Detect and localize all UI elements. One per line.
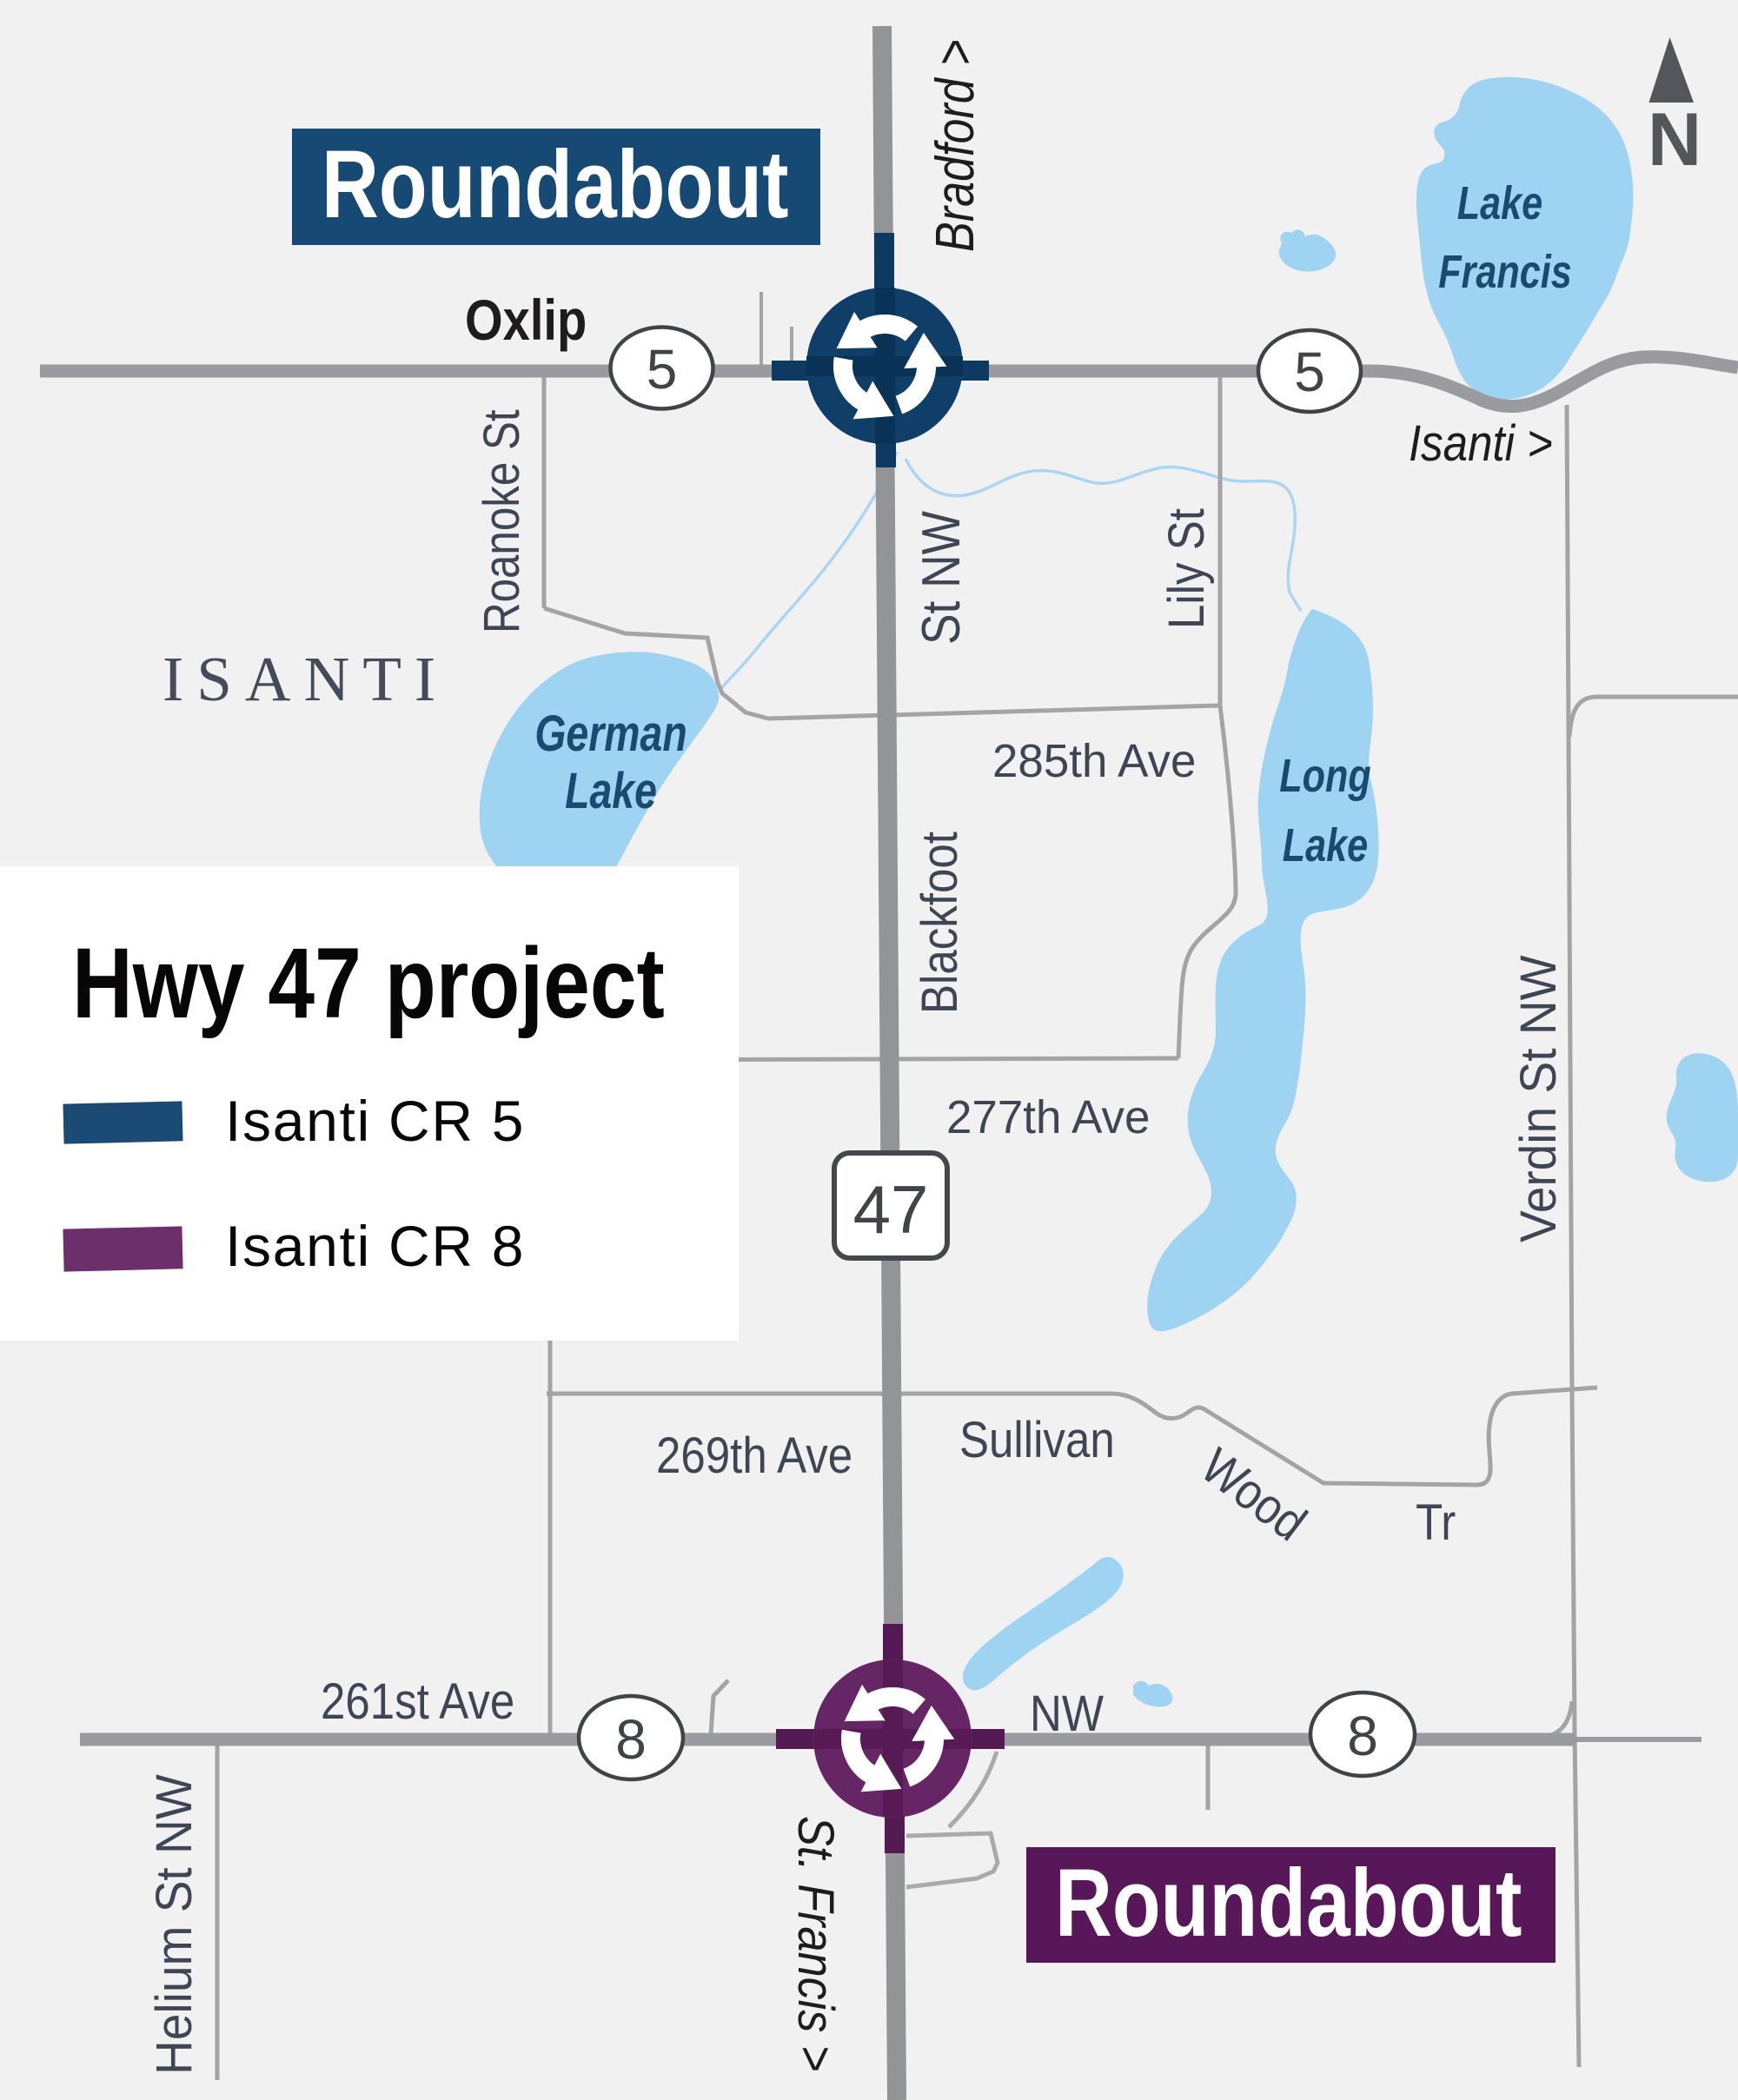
svg-text:Roundabout: Roundabout <box>322 131 788 238</box>
svg-text:ISANTI: ISANTI <box>163 644 448 714</box>
svg-text:Lake: Lake <box>1283 820 1368 872</box>
svg-text:8: 8 <box>615 1708 647 1771</box>
svg-text:Verdin St NW: Verdin St NW <box>1510 955 1567 1242</box>
svg-text:Roanoke St: Roanoke St <box>474 409 530 633</box>
svg-text:269th Ave: 269th Ave <box>656 1428 852 1484</box>
svg-text:N: N <box>1648 98 1702 182</box>
svg-text:Hwy 47 project: Hwy 47 project <box>72 927 665 1039</box>
svg-text:Francis: Francis <box>1438 247 1572 299</box>
svg-text:Lily St: Lily St <box>1158 508 1215 629</box>
svg-text:Helium St NW: Helium St NW <box>146 1774 202 2075</box>
svg-text:47: 47 <box>853 1171 929 1248</box>
svg-text:Sullivan: Sullivan <box>959 1412 1115 1468</box>
svg-text:Roundabout: Roundabout <box>1055 1850 1522 1957</box>
svg-text:NW: NW <box>1030 1686 1104 1742</box>
svg-text:285th Ave: 285th Ave <box>992 736 1196 788</box>
svg-text:261st Ave: 261st Ave <box>321 1673 514 1730</box>
svg-text:Isanti CR 5: Isanti CR 5 <box>225 1089 525 1153</box>
svg-text:Lake: Lake <box>565 763 657 819</box>
svg-text:Lake: Lake <box>1457 178 1542 230</box>
svg-text:St. Francis >: St. Francis > <box>787 1816 844 2071</box>
svg-text:St NW: St NW <box>912 511 972 645</box>
svg-text:5: 5 <box>1294 341 1325 403</box>
svg-text:Tr: Tr <box>1416 1494 1456 1551</box>
svg-text:5: 5 <box>647 338 678 401</box>
svg-text:German: German <box>534 706 687 762</box>
svg-text:Isanti >: Isanti > <box>1409 415 1553 472</box>
svg-text:8: 8 <box>1347 1705 1378 1767</box>
svg-text:Isanti CR 8: Isanti CR 8 <box>225 1214 525 1278</box>
svg-text:Oxlip: Oxlip <box>465 288 587 352</box>
svg-text:Long: Long <box>1279 751 1371 803</box>
svg-text:Blackfoot: Blackfoot <box>912 831 968 1014</box>
svg-text:Bradford >: Bradford > <box>925 39 985 252</box>
svg-text:277th Ave: 277th Ave <box>946 1092 1150 1144</box>
